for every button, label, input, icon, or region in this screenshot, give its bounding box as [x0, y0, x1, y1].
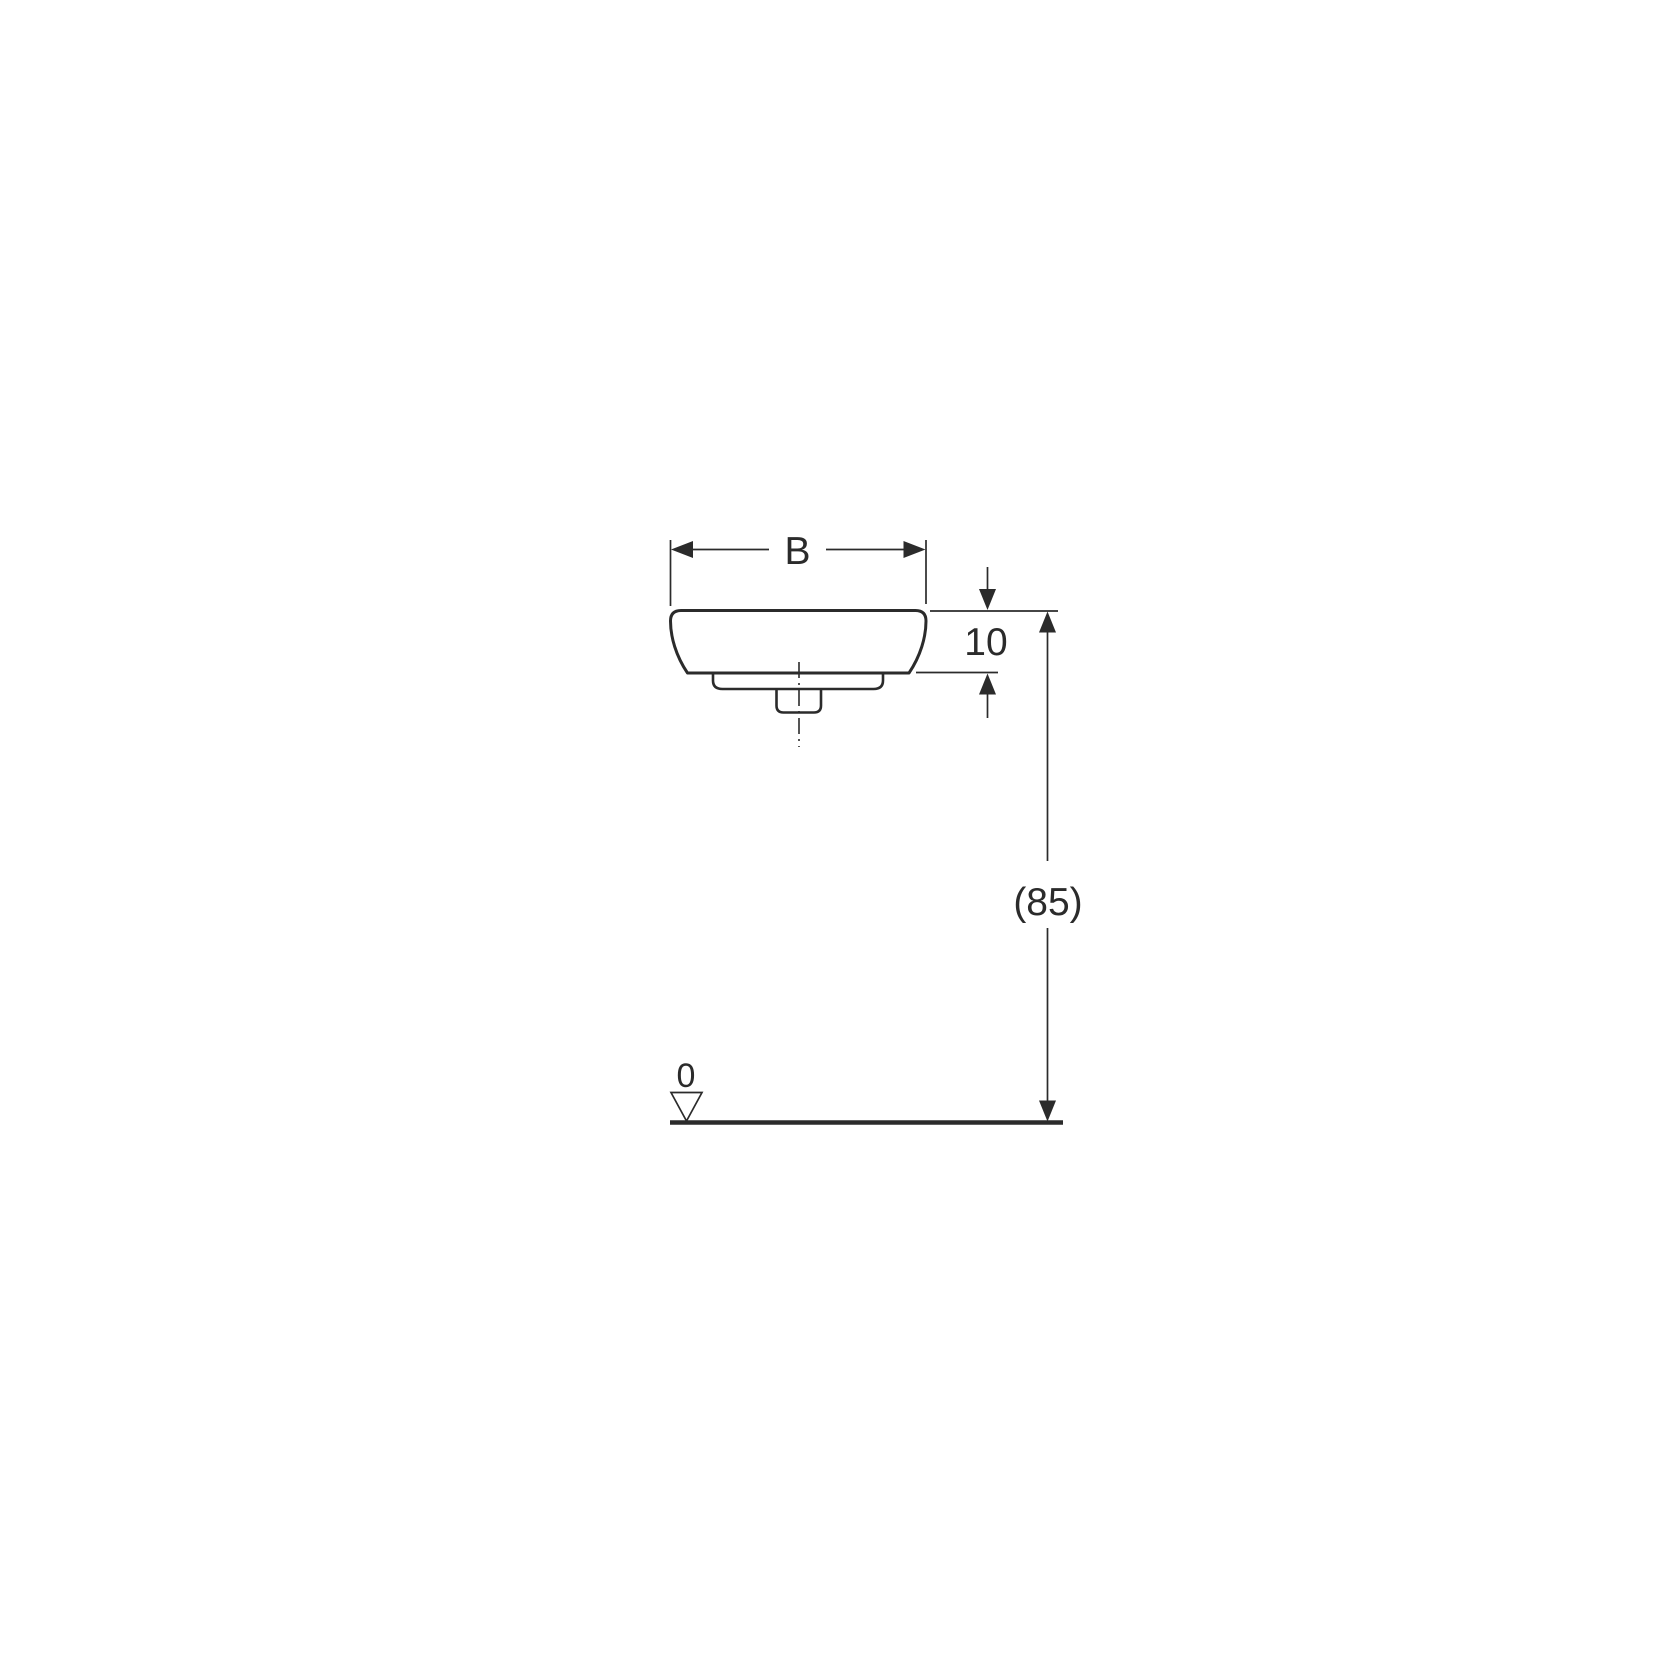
arrowhead-down-icon: [979, 589, 996, 610]
washbasin-outline: [671, 611, 927, 748]
install-height-label: (85): [1013, 881, 1082, 924]
arrowhead-up-icon: [979, 674, 996, 695]
datum-group: 0: [670, 1057, 1063, 1123]
datum-level-label: 0: [677, 1057, 696, 1095]
arrowhead-up-icon: [1039, 612, 1056, 633]
arrowhead-left-icon: [671, 541, 693, 558]
width-dimension: B: [671, 530, 927, 606]
datum-triangle-icon: [671, 1093, 702, 1122]
rim-height-dimension: 10: [916, 567, 1058, 718]
drawing-canvas: B 10 (85) 0: [0, 0, 1660, 1660]
width-dimension-label: B: [784, 530, 810, 573]
dimension-drawing-page: B 10 (85) 0: [0, 0, 1660, 1660]
arrowhead-right-icon: [904, 541, 926, 558]
basin-mounting-step: [713, 674, 883, 689]
arrowhead-down-icon: [1039, 1101, 1056, 1122]
rim-height-label: 10: [964, 621, 1007, 664]
install-height-dimension: (85): [1013, 612, 1082, 1122]
